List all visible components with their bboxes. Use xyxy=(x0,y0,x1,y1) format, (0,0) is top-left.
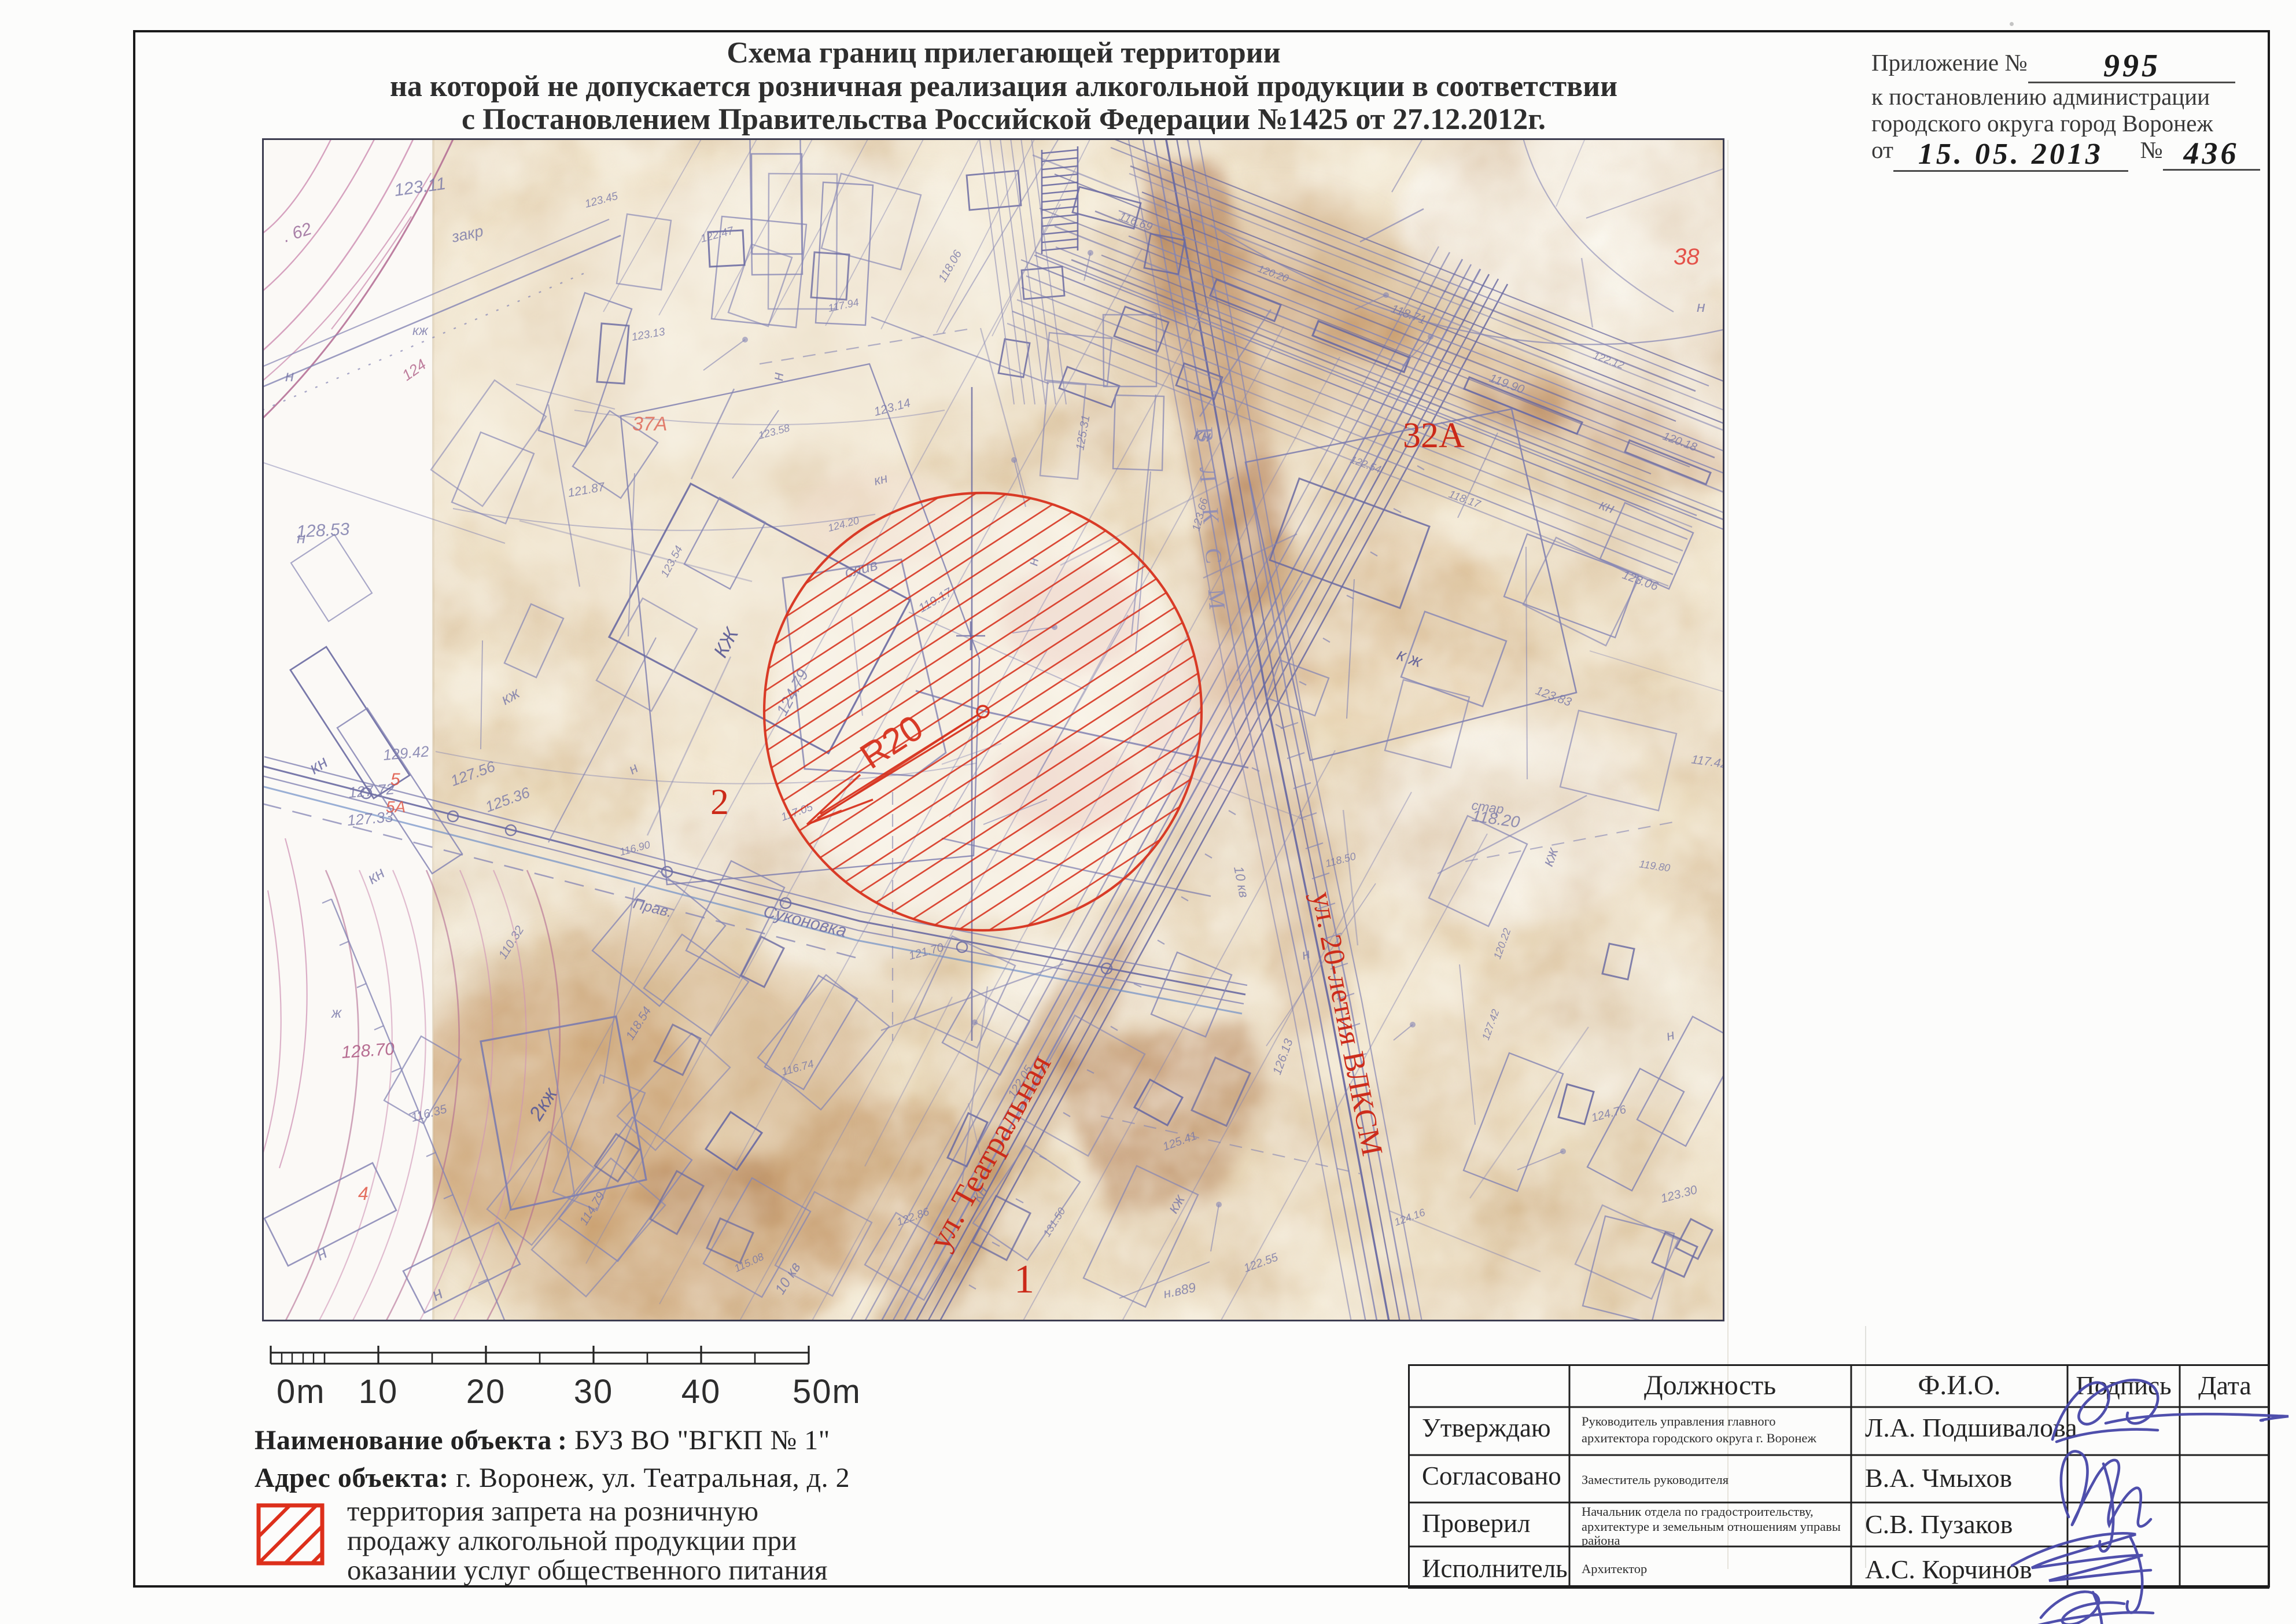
svg-text:40: 40 xyxy=(681,1373,721,1411)
svg-text:5: 5 xyxy=(390,770,400,789)
svg-text:н: н xyxy=(769,371,787,382)
svg-text:Заместитель руководителя: Заместитель руководителя xyxy=(1582,1472,1729,1487)
svg-text:37А: 37А xyxy=(632,413,668,435)
svg-text:128.53: 128.53 xyxy=(296,520,351,542)
svg-text:128.70: 128.70 xyxy=(341,1040,395,1062)
svg-text:32А: 32А xyxy=(1403,416,1465,455)
svg-text:кж: кж xyxy=(412,323,429,338)
svg-text:1: 1 xyxy=(1014,1257,1034,1302)
svg-text:Должность: Должность xyxy=(1644,1370,1776,1401)
svg-text:Исполнитель: Исполнитель xyxy=(1422,1554,1568,1583)
svg-text:района: района xyxy=(1582,1533,1620,1548)
svg-text:Согласовано: Согласовано xyxy=(1422,1461,1561,1490)
svg-text:Утверждаю: Утверждаю xyxy=(1422,1413,1551,1442)
svg-text:архитектора городского округа: архитектора городского округа г. Воронеж xyxy=(1582,1431,1816,1445)
svg-text:30: 30 xyxy=(574,1373,614,1411)
svg-text:Проверил: Проверил xyxy=(1422,1509,1531,1538)
svg-text:архитектуре и земельным отноше: архитектуре и земельным отношениям управ… xyxy=(1582,1519,1841,1534)
svg-text:н: н xyxy=(285,367,294,385)
svg-text:0m: 0m xyxy=(277,1373,326,1411)
svg-text:5А: 5А xyxy=(386,798,406,816)
svg-text:10: 10 xyxy=(359,1373,399,1411)
svg-text:Архитектор: Архитектор xyxy=(1582,1562,1647,1576)
svg-text:н: н xyxy=(1697,298,1705,315)
svg-text:ж: ж xyxy=(331,1005,342,1021)
svg-text:Руководитель управления главно: Руководитель управления главного xyxy=(1582,1414,1776,1428)
svg-text:20: 20 xyxy=(466,1373,506,1411)
svg-text:50m: 50m xyxy=(793,1373,861,1411)
svg-text:2: 2 xyxy=(710,781,729,822)
svg-text:Начальник отдела по градострои: Начальник отдела по градостроительству, xyxy=(1582,1504,1814,1519)
svg-text:38: 38 xyxy=(1674,244,1700,270)
svg-text:4: 4 xyxy=(358,1183,368,1204)
